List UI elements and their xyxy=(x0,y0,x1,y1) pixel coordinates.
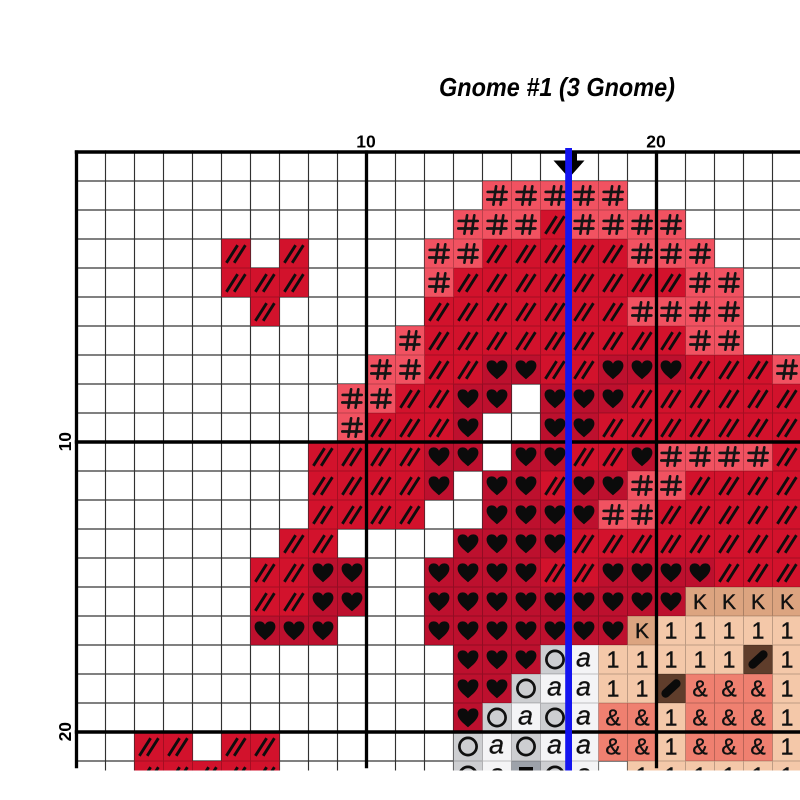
svg-text:20: 20 xyxy=(646,132,666,152)
svg-text:Gnome #1 (3 Gnome): Gnome #1 (3 Gnome) xyxy=(439,72,675,102)
svg-text:20: 20 xyxy=(55,722,75,742)
svg-text:10: 10 xyxy=(356,132,376,152)
svg-text:10: 10 xyxy=(55,432,75,452)
